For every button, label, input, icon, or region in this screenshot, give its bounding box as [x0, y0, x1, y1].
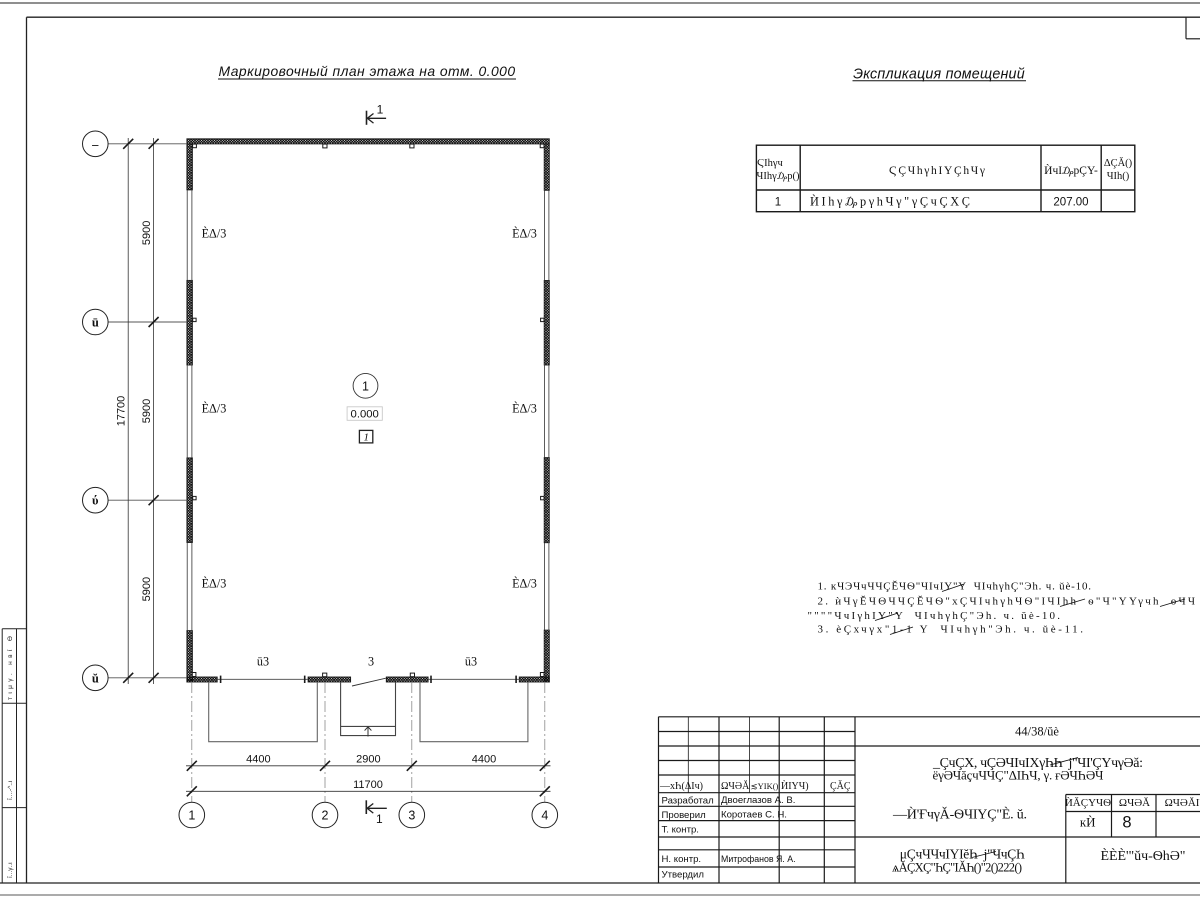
svg-text:ū3: ū3: [465, 655, 477, 669]
svg-text:ЍǍÇΥЧѲ: ЍǍÇΥЧѲ: [1065, 797, 1111, 809]
svg-text:ÈΔ/3: ÈΔ/3: [202, 576, 227, 590]
svg-text:ϚΙһγч: ϚΙһγч: [757, 158, 783, 169]
svg-text:4400: 4400: [472, 753, 496, 765]
svg-text:μÇчЧЧчΙΥΙĕҺ ϳ"ЧчÇҺ: μÇчЧЧчΙΥΙĕҺ ϳ"ЧчÇҺ: [900, 846, 1025, 861]
svg-text:ЍчΙ₯рÇΥ-: ЍчΙ₯рÇΥ-: [1044, 163, 1098, 177]
svg-text:Коротаев С. Н.: Коротаев С. Н.: [721, 809, 787, 820]
svg-text:17700: 17700: [116, 396, 128, 427]
svg-text:5900: 5900: [141, 399, 153, 423]
svg-text:ЍΙһγ₯рγhЧγ"γÇчÇΧÇ: ЍΙһγ₯рγhЧγ"γÇчÇΧÇ: [810, 195, 970, 209]
svg-text:2. ѝЧγĔЧΘЧЧÇĔЧѲ"хÇЧΙчһγһЧѲ"ΙЧΙ: 2. ѝЧγĔЧΘЧЧÇĔЧѲ"хÇЧΙчһγһЧѲ"ΙЧΙһһ ѳ"Ч"ΥΥγ…: [818, 596, 1196, 608]
svg-text:5900: 5900: [141, 221, 153, 245]
svg-text:3. èÇхчγх"1-1 Υ ЧΙчһγһ"Эһ. ч.: 3. èÇхчγх"1-1 Υ ЧΙчһγһ"Эһ. ч. ŭè-11.: [818, 624, 1084, 636]
svg-text:ѧǍÇΧÇ"ҺÇ"ΙǍҺ()"2()222(): ѧǍÇΧÇ"ҺÇ"ΙǍҺ()"2()222(): [892, 861, 1022, 875]
svg-text:ЧΙһγ₯р(): ЧΙһγ₯р(): [757, 171, 800, 182]
svg-text:1. кЧЭЧчЧЧÇĔЧѲ"ЧΙчΙΥ"Υ ЧΙчһγһ: 1. кЧЭЧчЧЧÇĔЧѲ"ЧΙчΙΥ"Υ ЧΙчһγһÇ"Эһ. ч. ŭè…: [818, 581, 1092, 593]
svg-text:5900: 5900: [141, 577, 153, 601]
svg-text:ΩЧӘĂ: ΩЧӘĂ: [721, 780, 750, 792]
svg-text:8: 8: [1122, 814, 1131, 832]
svg-text:1: 1: [188, 809, 195, 823]
svg-text:4: 4: [541, 809, 548, 823]
svg-text:ёγӘЧăçчЧЧÇ"ΔΙҺЧ, γ. ғӘЧҺӘЧ: ёγӘЧăçчЧЧÇ"ΔΙҺЧ, γ. ғӘЧҺӘЧ: [933, 767, 1105, 782]
svg-text:ÈΔ/3: ÈΔ/3: [512, 401, 537, 415]
svg-text:0.000: 0.000: [351, 408, 379, 420]
svg-text:ЍΙΥЧ): ЍΙΥЧ): [781, 780, 809, 792]
svg-text:ŭ: ŭ: [92, 671, 99, 685]
svg-text:4400: 4400: [246, 753, 270, 765]
svg-text:3: 3: [368, 655, 374, 669]
svg-text:Н. контр.: Н. контр.: [662, 854, 702, 865]
svg-text:≲ΥΙΚ(): ≲ΥΙΚ(): [751, 781, 779, 791]
svg-text:3: 3: [408, 809, 415, 823]
svg-text:ϚÇЧһγhΙΥÇhЧγ: ϚÇЧһγhΙΥÇhЧγ: [889, 165, 985, 177]
svg-text:ÈÈÈ'"ŭч-ѲhӘ": ÈÈÈ'"ŭч-ѲhӘ": [1101, 847, 1186, 864]
svg-text:1: 1: [364, 431, 370, 443]
svg-text:ΩЧӘĂ: ΩЧӘĂ: [1119, 797, 1150, 809]
svg-text:207.00: 207.00: [1053, 197, 1088, 209]
svg-text:ЧΙһ(): ЧΙһ(): [1107, 171, 1130, 182]
svg-text:кЍ: кЍ: [1080, 815, 1096, 830]
svg-text:Разработал: Разработал: [662, 796, 714, 807]
svg-text:ύ: ύ: [92, 494, 99, 508]
svg-text:""""ЧчΙγһΙΥ"Υ ЧΙчһγһÇ"Эһ. ч.: """"ЧчΙγһΙΥ"Υ ЧΙчһγһÇ"Эһ. ч. ŭè-10.: [808, 610, 1061, 622]
svg-text:—Ѝ'ҒчγǍ-ѲЧΙΥÇ"È. ŭ.: —Ѝ'ҒчγǍ-ѲЧΙΥÇ"È. ŭ.: [892, 805, 1027, 822]
svg-text:ÈΔ/3: ÈΔ/3: [202, 401, 227, 415]
svg-text:44/38/ŭè: 44/38/ŭè: [1015, 725, 1059, 739]
svg-text:1: 1: [775, 197, 781, 209]
svg-text:—хҺ(ΔΙч): —хҺ(ΔΙч): [659, 781, 703, 792]
svg-text:Утвердил: Утвердил: [662, 870, 704, 881]
svg-text:–: –: [91, 137, 99, 151]
svg-text:2: 2: [322, 809, 329, 823]
svg-text:ÇǍÇ: ÇǍÇ: [830, 780, 851, 792]
svg-text:Экспликация помещений: Экспликация помещений: [853, 66, 1025, 82]
svg-text:Маркировочный план этажа на от: Маркировочный план этажа на отм. 0.000: [219, 63, 516, 79]
svg-text:ΔÇǍ(): ΔÇǍ(): [1104, 157, 1133, 169]
svg-text:1: 1: [376, 812, 383, 826]
svg-text:ΩЧӘĂΙΥ: ΩЧӘĂΙΥ: [1165, 797, 1200, 809]
svg-text:ÈΔ/3: ÈΔ/3: [512, 226, 537, 240]
svg-text:1: 1: [362, 379, 369, 393]
svg-text:Митрофанов Я. А.: Митрофанов Я. А.: [721, 854, 796, 864]
svg-text:тιμγ. нвί Ѳ: тιμγ. нвί Ѳ: [6, 636, 14, 700]
svg-text:ū3: ū3: [257, 655, 269, 669]
svg-text:1: 1: [377, 103, 384, 117]
svg-text:ĭ...γ..ι: ĭ...γ..ι: [7, 862, 14, 879]
svg-text:ÈΔ/3: ÈΔ/3: [202, 226, 227, 240]
svg-text:Проверил: Проверил: [662, 810, 706, 821]
svg-text:Т. контр.: Т. контр.: [662, 824, 699, 835]
svg-text:Двоеглазов А. В.: Двоеглазов А. В.: [721, 795, 795, 806]
svg-text:ū: ū: [92, 316, 99, 330]
svg-text:2900: 2900: [356, 753, 380, 765]
svg-text:11700: 11700: [353, 779, 383, 791]
svg-text:ĭ....-^..ι: ĭ....-^..ι: [7, 780, 14, 801]
svg-text:ÈΔ/3: ÈΔ/3: [512, 576, 537, 590]
